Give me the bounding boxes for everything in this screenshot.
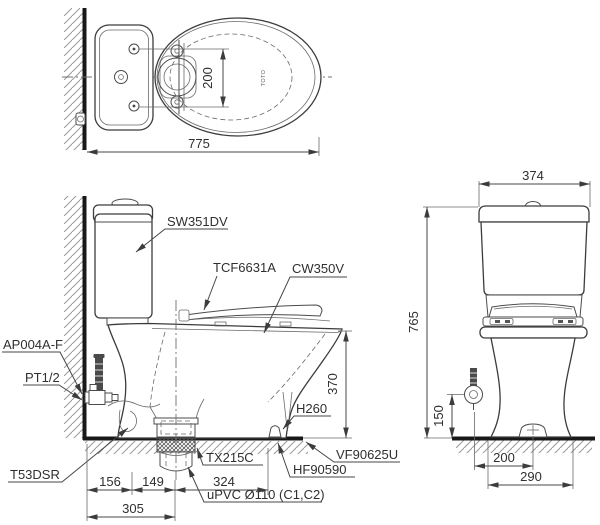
dim-text-324: 324 [213, 474, 235, 489]
dim-text-775: 775 [188, 136, 210, 151]
brand-mark: TOTO [261, 69, 267, 86]
flange-and-drain-pipe [154, 418, 198, 471]
dim-text-765: 765 [406, 311, 421, 333]
dim-text-149: 149 [142, 474, 164, 489]
tank-front [479, 202, 589, 318]
dim-supply-height: 150 [431, 395, 464, 439]
callout-bowl-model: CW350V [264, 261, 347, 333]
callout-seat-model: TCF6631A [204, 260, 276, 310]
toilet-installation-drawing-page: TOTO 200 775 [0, 0, 600, 525]
supply-fitting-plan [76, 113, 85, 125]
dim-text-150: 150 [431, 405, 446, 427]
label-angle-valve: AP004A-F [3, 337, 63, 352]
floor-hatching-front-view [456, 440, 592, 453]
dim-text-200-plan: 200 [200, 67, 215, 89]
supply-valve-front [465, 368, 483, 410]
label-drain-pipe: uPVC Ø110 (C1,C2) [207, 487, 325, 502]
wall-hatching-top-view [64, 8, 83, 150]
callout-seal: VF90625U [306, 442, 400, 462]
dim-overall-height: 765 [406, 207, 478, 438]
label-seat-model: TCF6631A [213, 260, 276, 275]
dim-text-200-front: 200 [493, 450, 515, 465]
label-tank-model: SW351DV [167, 214, 228, 229]
seat-lid-plan: TOTO [155, 18, 321, 136]
tank-plan [95, 25, 153, 130]
wall-hatching-side-view [64, 196, 83, 438]
label-bowl-model: CW350V [292, 261, 344, 276]
floor-hatching-side-view [85, 441, 308, 454]
label-floor-fixing: HF90590 [293, 462, 346, 477]
label-thread-size: PT1/2 [25, 370, 60, 385]
top-view: TOTO 200 775 [62, 8, 332, 156]
bowl-side [108, 305, 343, 438]
dim-text-305: 305 [122, 501, 144, 516]
tank-side [94, 199, 153, 325]
side-view: 370 SW351DV TCF6631A CW350V AP004A-F PT1… [2, 196, 400, 521]
dim-text-370: 370 [325, 373, 340, 395]
dim-text-156: 156 [99, 474, 121, 489]
dim-text-290: 290 [520, 469, 542, 484]
stop-valve-assembly [85, 354, 118, 405]
seat-front [480, 304, 587, 338]
front-view: 374 765 150 200 290 [406, 168, 595, 489]
label-bolt-cap: H260 [296, 401, 327, 416]
dim-overall-depth: 775 [87, 136, 319, 156]
dim-text-374: 374 [522, 168, 544, 183]
label-supply-valve: T53DSR [10, 467, 60, 482]
technical-drawing: TOTO 200 775 [0, 0, 600, 525]
bowl-pedestal-front [491, 338, 575, 437]
label-flange: TX215C [206, 450, 254, 465]
label-seal: VF90625U [336, 447, 398, 462]
callout-flange: TX215C [197, 448, 263, 465]
